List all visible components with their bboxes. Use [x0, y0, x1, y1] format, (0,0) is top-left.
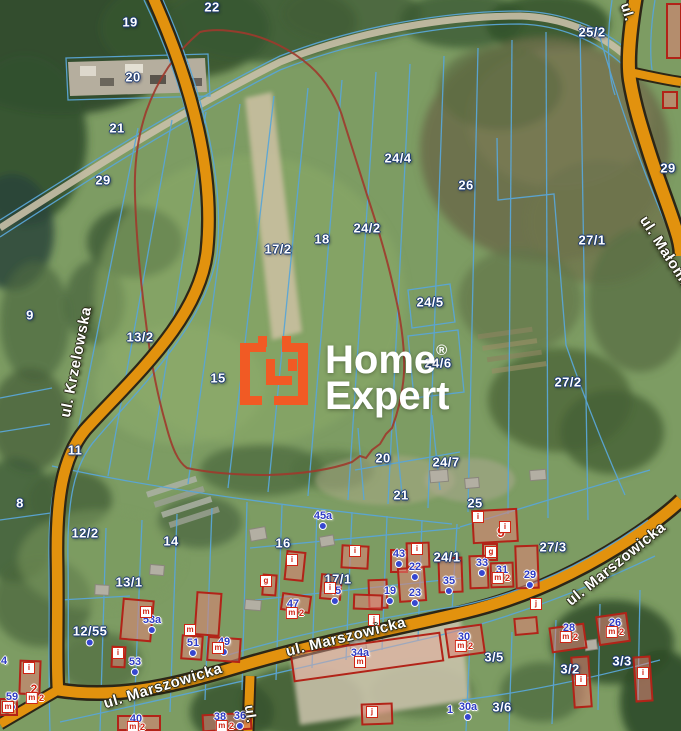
registered-mark: ®	[436, 342, 447, 359]
map-canvas: 192220212925/224/4262924/21817/227/124/5…	[0, 0, 681, 731]
home-expert-logo-icon	[236, 333, 312, 409]
watermark-text: Home® Expert	[325, 333, 450, 414]
watermark-line2: Expert	[325, 378, 450, 414]
home-expert-watermark: Home® Expert	[236, 333, 450, 414]
